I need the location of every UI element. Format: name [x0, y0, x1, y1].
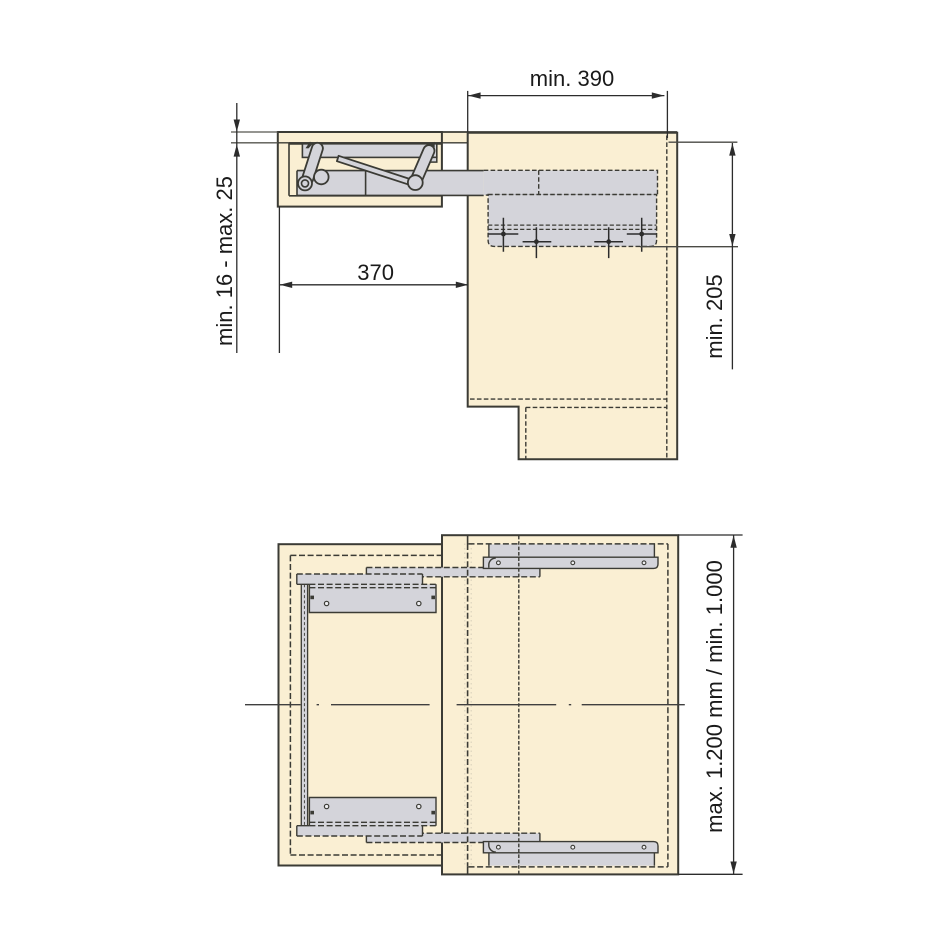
svg-text:max. 1.200 mm / min. 1.000: max. 1.200 mm / min. 1.000: [702, 560, 727, 833]
svg-text:min. 16 - max. 25: min. 16 - max. 25: [212, 176, 237, 346]
svg-text:min. 205: min. 205: [702, 274, 727, 358]
svg-text:min. 390: min. 390: [530, 66, 614, 91]
svg-text:370: 370: [357, 260, 394, 285]
